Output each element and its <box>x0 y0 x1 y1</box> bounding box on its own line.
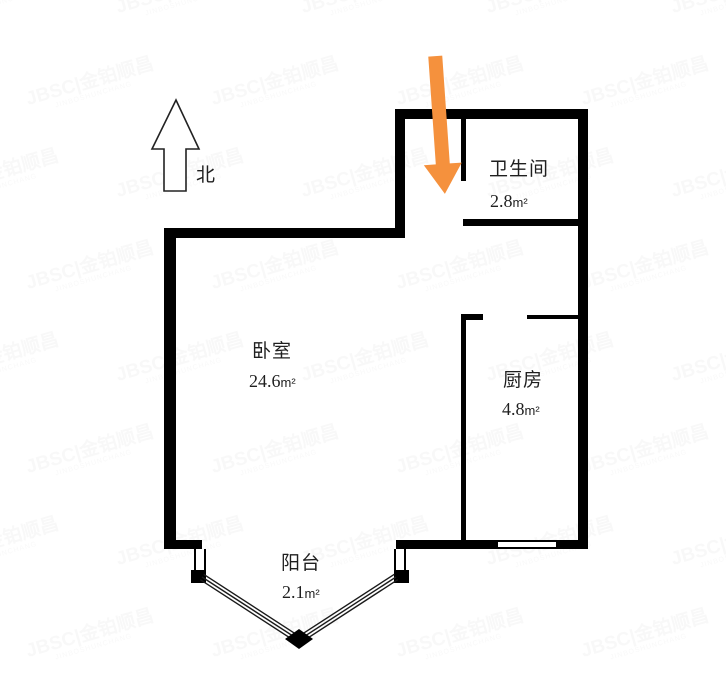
wall-bottom-kitchen-right <box>556 540 588 549</box>
balcony-left-post <box>191 570 206 583</box>
bathroom-area-value: 2.8 <box>490 191 513 211</box>
watermark: JBSC|金铂顺昌JINBOSHUNCHANG <box>669 330 726 392</box>
watermark: JBSC|金铂顺昌JINBOSHUNCHANG <box>299 0 433 25</box>
kitchen-area-value: 4.8 <box>502 399 525 419</box>
watermark: JBSC|金铂顺昌JINBOSHUNCHANG <box>24 238 158 300</box>
watermark: JBSC|金铂顺昌JINBOSHUNCHANG <box>669 0 726 25</box>
watermark: JBSC|金铂顺昌JINBOSHUNCHANG <box>669 514 726 576</box>
watermark: JBSC|金铂顺昌JINBOSHUNCHANG <box>299 330 433 392</box>
floor-plan: JBSC|金铂顺昌JINBOSHUNCHANGJBSC|金铂顺昌JINBOSHU… <box>0 0 726 676</box>
wall-kitchen-partition <box>461 314 466 540</box>
wall-bottom-kitchen-left <box>396 540 498 549</box>
bedroom-area: 24.6m² <box>249 372 296 390</box>
bedroom-area-value: 24.6 <box>249 371 281 391</box>
bathroom-area-unit: m² <box>513 195 528 210</box>
watermark: JBSC|金铂顺昌JINBOSHUNCHANG <box>114 0 248 25</box>
bathroom-area: 2.8m² <box>490 192 528 210</box>
watermark: JBSC|金铂顺昌JINBOSHUNCHANG <box>579 422 713 484</box>
watermark: JBSC|金铂顺昌JINBOSHUNCHANG <box>114 146 248 208</box>
kitchen-area: 4.8m² <box>502 400 540 418</box>
watermark: JBSC|金铂顺昌JINBOSHUNCHANG <box>579 238 713 300</box>
watermark: JBSC|金铂顺昌JINBOSHUNCHANG <box>669 146 726 208</box>
watermark: JBSC|金铂顺昌JINBOSHUNCHANG <box>209 54 343 116</box>
watermark: JBSC|金铂顺昌JINBOSHUNCHANG <box>0 146 63 208</box>
wall-bedroom-top <box>164 228 405 238</box>
wall-kitchen-top-right <box>527 315 578 319</box>
bedroom-area-unit: m² <box>281 375 296 390</box>
kitchen-window <box>498 540 556 549</box>
kitchen-label: 厨房 <box>503 371 543 390</box>
entrance-arrow-icon <box>416 55 464 195</box>
balcony-right-post <box>394 570 409 583</box>
balcony-area: 2.1m² <box>282 583 320 601</box>
north-label: 北 <box>196 166 215 185</box>
watermark: JBSC|金铂顺昌JINBOSHUNCHANG <box>394 238 528 300</box>
watermark: JBSC|金铂顺昌JINBOSHUNCHANG <box>484 0 618 25</box>
balcony-corner-post <box>285 629 313 649</box>
watermark: JBSC|金铂顺昌JINBOSHUNCHANG <box>0 330 63 392</box>
balcony-area-value: 2.1 <box>282 582 305 602</box>
kitchen-area-unit: m² <box>525 403 540 418</box>
balcony-label: 阳台 <box>281 554 321 573</box>
watermark: JBSC|金铂顺昌JINBOSHUNCHANG <box>394 606 528 668</box>
watermark: JBSC|金铂顺昌JINBOSHUNCHANG <box>299 146 433 208</box>
wall-right <box>578 109 588 549</box>
wall-bathroom-partition <box>461 119 466 181</box>
wall-left <box>164 228 176 549</box>
watermark: JBSC|金铂顺昌JINBOSHUNCHANG <box>114 330 248 392</box>
watermark: JBSC|金铂顺昌JINBOSHUNCHANG <box>209 422 343 484</box>
watermark-layer: JBSC|金铂顺昌JINBOSHUNCHANGJBSC|金铂顺昌JINBOSHU… <box>0 0 726 676</box>
balcony-area-unit: m² <box>305 586 320 601</box>
north-arrow-icon <box>152 100 199 191</box>
wall-bottom-left <box>164 540 202 549</box>
watermark: JBSC|金铂顺昌JINBOSHUNCHANG <box>24 422 158 484</box>
balcony-left-window <box>194 549 206 572</box>
overlay-graphics <box>0 0 726 676</box>
watermark: JBSC|金铂顺昌JINBOSHUNCHANG <box>394 54 528 116</box>
watermark: JBSC|金铂顺昌JINBOSHUNCHANG <box>0 514 63 576</box>
watermark: JBSC|金铂顺昌JINBOSHUNCHANG <box>209 238 343 300</box>
watermark: JBSC|金铂顺昌JINBOSHUNCHANG <box>0 0 63 25</box>
bathroom-label: 卫生间 <box>489 160 549 179</box>
watermark: JBSC|金铂顺昌JINBOSHUNCHANG <box>24 54 158 116</box>
watermark: JBSC|金铂顺昌JINBOSHUNCHANG <box>579 54 713 116</box>
balcony-right-window <box>394 549 406 572</box>
wall-top <box>395 109 588 119</box>
wall-entry-left <box>395 109 405 238</box>
watermark: JBSC|金铂顺昌JINBOSHUNCHANG <box>24 606 158 668</box>
wall-bathroom-bottom <box>463 219 580 226</box>
watermark: JBSC|金铂顺昌JINBOSHUNCHANG <box>579 606 713 668</box>
bedroom-label: 卧室 <box>252 342 292 361</box>
watermark: JBSC|金铂顺昌JINBOSHUNCHANG <box>209 606 343 668</box>
